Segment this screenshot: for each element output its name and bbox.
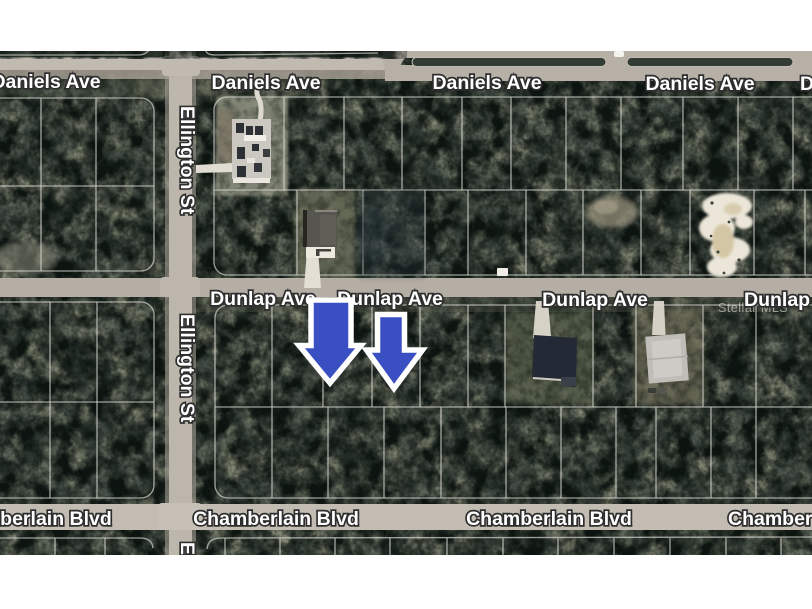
- svg-text:Dunlap Ave: Dunlap Ave: [744, 289, 812, 311]
- svg-text:Chamberlain Blvd: Chamberlain Blvd: [0, 508, 112, 530]
- svg-text:Daniels Ave: Daniels Ave: [211, 72, 320, 94]
- svg-text:Daniels Ave: Daniels Ave: [0, 71, 101, 93]
- svg-text:Ellington St: Ellington St: [176, 314, 198, 423]
- svg-text:Chamberlain Blvd: Chamberlain Blvd: [466, 508, 632, 530]
- svg-text:Daniels Ave: Daniels Ave: [645, 73, 754, 95]
- svg-text:Daniels Ave: Daniels Ave: [800, 73, 812, 95]
- svg-text:Daniels Ave: Daniels Ave: [432, 72, 541, 94]
- svg-text:Chamberlain Blvd: Chamberlain Blvd: [728, 508, 812, 530]
- svg-text:Dunlap Ave: Dunlap Ave: [542, 289, 648, 311]
- svg-text:Ellington St: Ellington St: [176, 106, 198, 215]
- svg-text:Dunlap Ave: Dunlap Ave: [210, 288, 316, 310]
- svg-text:Chamberlain Blvd: Chamberlain Blvd: [193, 508, 359, 530]
